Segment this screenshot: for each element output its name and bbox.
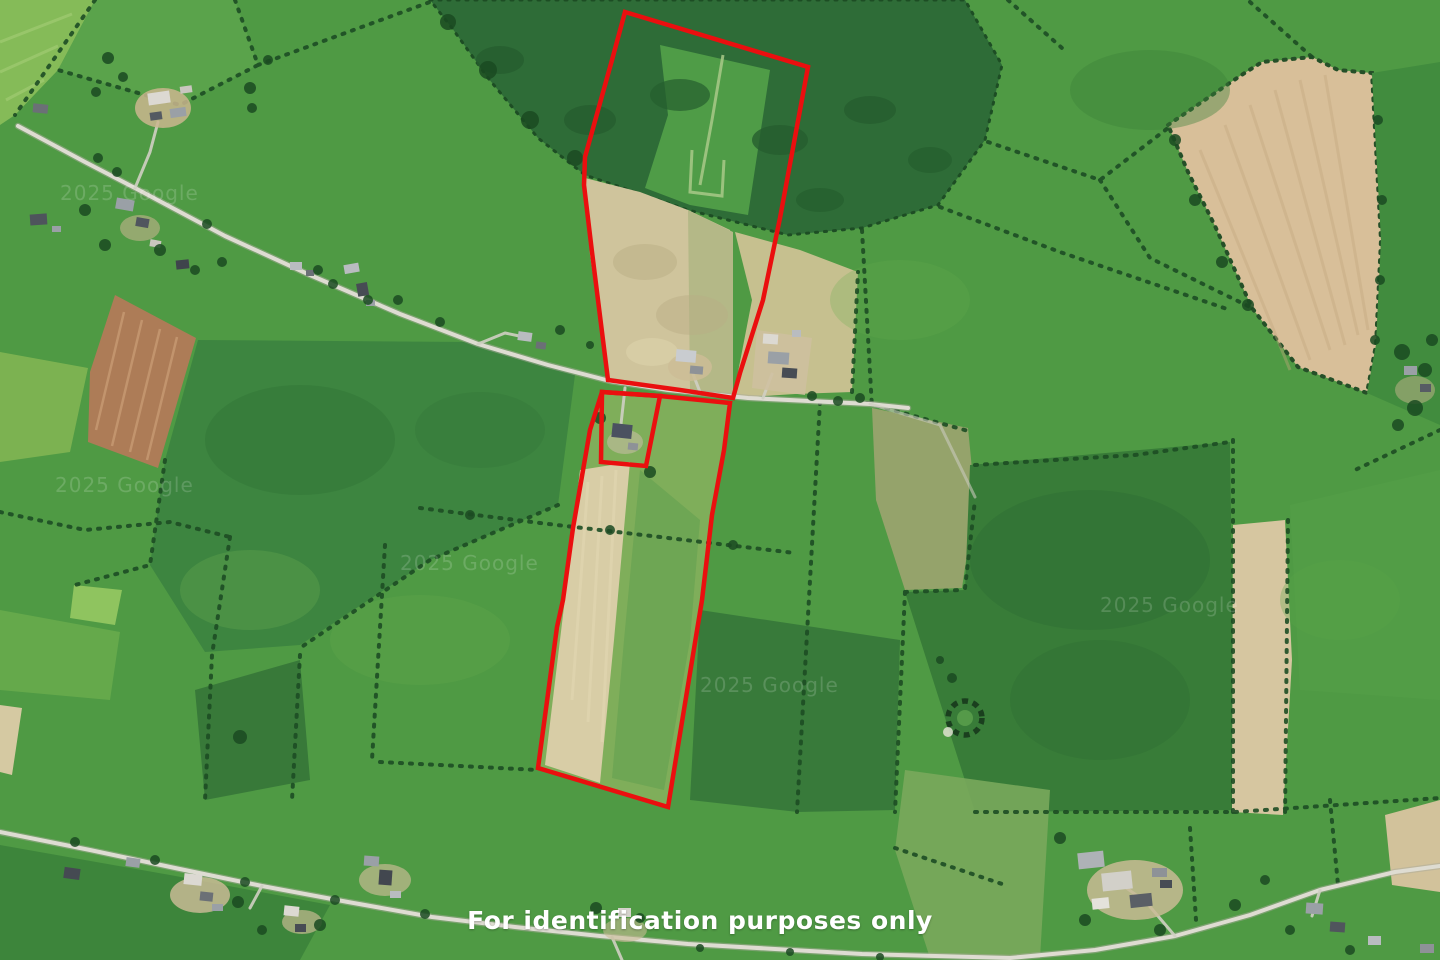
google-watermark-text: 2025 Google — [55, 473, 194, 497]
map-caption: For identification purposes only — [467, 906, 933, 935]
google-watermark-text: 2025 Google — [700, 673, 839, 697]
google-watermark-text: 2025 Google — [400, 551, 539, 575]
satellite-map[interactable]: 2025 Google2025 Google2025 Google2025 Go… — [0, 0, 1440, 960]
google-watermark-text: 2025 Google — [60, 181, 199, 205]
satellite-imagery: 2025 Google2025 Google2025 Google2025 Go… — [0, 0, 1440, 960]
google-watermark-text: 2025 Google — [1100, 593, 1239, 617]
